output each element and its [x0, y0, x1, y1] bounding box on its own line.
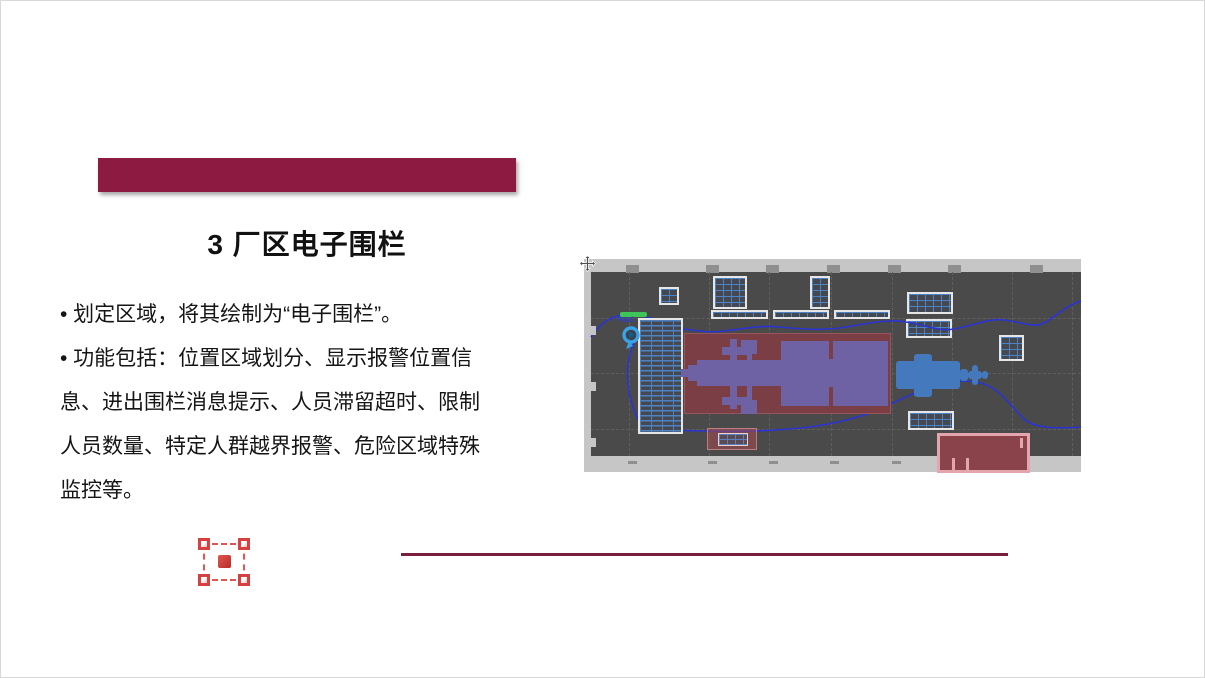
- small-red-zone: [707, 428, 757, 450]
- blue-machine: [896, 361, 960, 389]
- divider-line: [401, 553, 1008, 556]
- selection-marquee-icon: [198, 538, 250, 588]
- machine-shape: [697, 360, 785, 386]
- marquee-handle-icon: [198, 538, 210, 550]
- blue-machine: [982, 371, 988, 379]
- building-door: [952, 458, 955, 471]
- building-door: [966, 458, 969, 471]
- bullet-item: • 功能包括：位置区域划分、显示报警位置信息、进出围栏消息提示、人员滞留超时、限…: [60, 337, 497, 513]
- wall-notch: [584, 382, 596, 391]
- bullet-list: • 划定区域，将其绘制为“电子围栏”。 • 功能包括：位置区域划分、显示报警位置…: [60, 293, 497, 513]
- title-accent-bar: [98, 158, 516, 192]
- machine-shape: [828, 359, 836, 387]
- bullet-item: • 划定区域，将其绘制为“电子围栏”。: [60, 293, 497, 337]
- machine-shape: [688, 365, 698, 381]
- location-pin-icon: [621, 325, 643, 351]
- equipment-rack: [638, 318, 683, 434]
- blue-machine: [914, 387, 932, 397]
- machine-shape: [833, 341, 888, 406]
- page-title: 3 厂区电子围栏: [88, 223, 526, 263]
- marquee-center-square: [218, 555, 231, 568]
- marquee-handle-icon: [238, 538, 250, 550]
- machine-shape: [722, 397, 750, 405]
- pin-label: F62d: [617, 317, 633, 324]
- machine-shape: [722, 347, 750, 355]
- blue-machine: [914, 354, 932, 364]
- equipment-rack: [718, 433, 748, 446]
- machine-shape: [681, 369, 689, 377]
- building-door: [1020, 438, 1023, 448]
- wall-notch: [584, 326, 596, 335]
- pink-building-zone: [937, 433, 1030, 473]
- marquee-handle-icon: [198, 574, 210, 586]
- factory-map: 电子围栏 F62d: [584, 259, 1081, 474]
- machine-shape: [781, 341, 829, 406]
- slide-canvas: 3 厂区电子围栏 • 划定区域，将其绘制为“电子围栏”。 • 功能包括：位置区域…: [0, 0, 1205, 678]
- blue-machine: [960, 369, 968, 381]
- marquee-handle-icon: [238, 574, 250, 586]
- blue-machine: [972, 365, 978, 385]
- wall-notch: [584, 438, 596, 447]
